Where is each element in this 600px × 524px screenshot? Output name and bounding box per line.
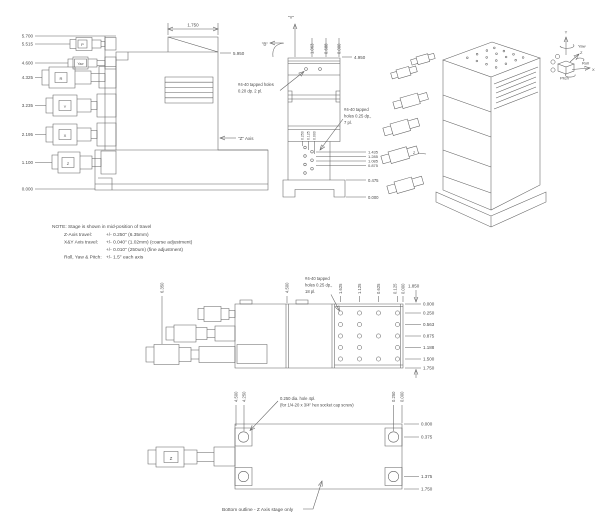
- note-block: NOTE: Stage is shown in mid-position of …: [52, 224, 193, 261]
- axis-indicator: Y Yaw Z Roll X Pitch: [551, 30, 595, 81]
- dim-label: 2.195: [22, 132, 34, 137]
- dim-label: 1.100: [22, 160, 34, 165]
- dim-label: 0.000: [313, 131, 317, 140]
- bottom-corner-bosses: [235, 428, 402, 486]
- side-body-outline: [283, 58, 345, 197]
- dim-label: 0.000: [401, 283, 406, 294]
- bottom-hole-note-line2: (for 1/4-20 x 3/4" hex socket cap screw): [280, 403, 354, 408]
- view-b-label: "B": [262, 42, 269, 47]
- iso-micrometers: [380, 52, 435, 196]
- dim-label: 4.600: [22, 61, 34, 66]
- dim-label: 1.500: [423, 357, 435, 362]
- z-axis-label: "Z" Axis: [238, 136, 254, 141]
- bottom-right-dim-extensions: [394, 405, 403, 431]
- dim-label: 0.875: [423, 334, 435, 339]
- plan-micrometers: [146, 307, 235, 365]
- micrometer-label-x: X: [64, 133, 67, 138]
- axis-yaw-arc: [560, 45, 574, 49]
- axis-stage-knobs: [551, 54, 560, 72]
- dim-label: 0.563: [423, 322, 435, 327]
- dim-label: 1.750: [423, 366, 435, 371]
- dim-label: 0.125: [393, 283, 398, 294]
- tapped-note-top-line2: 0.20 dp. 2 pl.: [238, 89, 262, 94]
- plan-tapped-note-line1: #4-40 tapped: [305, 276, 330, 281]
- tapped-note-front-line3: 7 pl.: [344, 120, 352, 125]
- tapped-note-top-line1: #4-40 tapped holes: [238, 82, 274, 87]
- plan-left-dim-extensions: [162, 296, 287, 344]
- tapped-note-front-leader: [320, 119, 343, 150]
- tapped-note-top-leader: [280, 72, 304, 91]
- bottom-hole-note-line1: 0.250 dia. hole 4pl.: [280, 396, 315, 401]
- bottom-z-micrometer-label: Z: [170, 456, 173, 461]
- plan-hole-grid: [338, 311, 399, 361]
- dim-label: 4.250: [242, 391, 247, 402]
- side-body-details: [288, 61, 340, 180]
- axis-z-label: Z: [580, 50, 583, 55]
- axis-yaw-label: Yaw: [578, 44, 586, 49]
- note-xy-travel-value: +/- 0.040" (1.02mm) (coarse adjustment): [106, 240, 193, 246]
- front-body-details: [95, 36, 268, 190]
- micrometer-label-y: Y: [64, 104, 67, 109]
- side-elevation-view: "Y" "B" 1.063 0.688 0.000 4.950 #4-40 ta…: [238, 15, 379, 200]
- front-micrometers: [42, 38, 105, 174]
- dim-label: 1.125: [357, 283, 362, 294]
- front-mount-brackets: [97, 38, 116, 175]
- dim-label: 1.375: [421, 474, 433, 479]
- bottom-screw-holes: [238, 432, 398, 482]
- dim-label: 5.700: [22, 34, 34, 39]
- dim-label: 1.750: [187, 23, 199, 28]
- dim-label: 1.188: [423, 345, 435, 350]
- dim-label: 0.000: [400, 391, 405, 402]
- dim-label: 5.950: [233, 51, 245, 56]
- note-xy-travel-label: X&Y Axis travel:: [64, 240, 98, 246]
- bottom-left-dim-extensions: [236, 405, 244, 431]
- y-axis-label: "Y": [288, 15, 295, 20]
- dim-label: 4.500: [285, 282, 290, 293]
- dim-label: 1.625: [338, 283, 343, 294]
- dim-label: 3.235: [22, 103, 34, 108]
- dim-label: 0.375: [421, 435, 433, 440]
- dim-label: 0.000: [368, 195, 379, 200]
- axis-roll-label: Roll: [582, 61, 589, 66]
- dim-label: 0.000: [423, 302, 435, 307]
- note-z-travel-label: Z-Axis travel:: [64, 232, 92, 238]
- dim-label: 0.688: [324, 43, 329, 54]
- bottom-caption-leader: [303, 481, 322, 509]
- side-hole-col-extensions: [303, 141, 315, 154]
- note-line1: NOTE: Stage is shown in mid-position of …: [52, 224, 151, 230]
- plan-row-dim-leaders: [405, 304, 421, 368]
- axis-x-label: X: [592, 67, 595, 72]
- bottom-row-dim-leaders: [404, 424, 419, 489]
- plan-body-outline: [235, 304, 403, 368]
- axis-z-arrow: [570, 54, 579, 62]
- dim-label: 0.475: [368, 178, 379, 183]
- dim-label: 0.250: [423, 311, 435, 316]
- dim-label: 0.000: [337, 43, 342, 54]
- y-axis-leader-hook: [273, 43, 284, 57]
- micrometer-label-z: Z: [67, 161, 70, 166]
- bottom-view: Z 4.500 4.250 0.250 dia. hole 4pl. (for …: [148, 391, 433, 513]
- bottom-z-micrometer: [148, 447, 235, 467]
- dim-label: 1.850: [408, 284, 420, 289]
- dim-label: 4.950: [354, 55, 366, 60]
- note-xy-travel-value2: +/- 0.010" (250um) (fine adjustment): [106, 247, 183, 253]
- dim-label: 0.250: [391, 391, 396, 402]
- bottom-plate-outline: [235, 424, 402, 489]
- multi-axis-stage-drawing: P Yaw R Y X Z 5.700 5.515 4.600 4.325 3.…: [0, 0, 600, 524]
- axis-stage-glyph: [558, 61, 574, 74]
- dim-label: 4.325: [22, 75, 34, 80]
- dim-label: 0.875: [368, 163, 379, 168]
- bottom-caption: Bottom outline - Z Axis stage only: [222, 507, 294, 513]
- side-right-dim-leaders: [316, 152, 366, 197]
- micrometer-label-yaw: Yaw: [78, 62, 85, 66]
- dim-label: 0.250: [301, 131, 305, 140]
- plan-tapped-note-line2: holes 0.25 dp.,: [305, 283, 332, 288]
- note-rot-travel-label: Roll, Yaw & Pitch:: [64, 255, 102, 261]
- iso-top-hole-grid: [466, 47, 524, 68]
- tapped-note-front-line2: holes 0.25 dp.,: [344, 114, 371, 119]
- dim-label: 0.125: [307, 131, 311, 140]
- dim-label: 1.750: [421, 487, 433, 492]
- iso-z-leader: [418, 153, 426, 154]
- iso-body-faces: [443, 42, 540, 210]
- iso-front-details: [443, 95, 491, 193]
- dim-label: 6.350: [160, 282, 165, 293]
- plan-tapped-note-line3: 18 pl.: [305, 289, 315, 294]
- axis-x-arrow: [572, 68, 590, 70]
- plan-col-dim-extensions: [341, 296, 404, 302]
- axis-y-label: Y: [565, 30, 568, 35]
- side-tapped-holes: [304, 68, 322, 175]
- note-rot-travel-value: +/- 1.5° each axis: [106, 255, 144, 261]
- dim-label: 1.063: [310, 43, 315, 54]
- front-elevation-view: P Yaw R Y X Z 5.700 5.515 4.600 4.325 3.…: [22, 23, 268, 192]
- dim-label: 0.000: [22, 187, 34, 192]
- dim-label: 4.500: [234, 391, 239, 402]
- tapped-note-front-line1: #4-40 tapped: [344, 107, 369, 112]
- micrometer-label-pitch: P: [81, 42, 84, 47]
- note-z-travel-value: +/- 0.250" (6.35mm): [106, 232, 149, 238]
- micrometer-label-roll: R: [60, 76, 63, 81]
- plan-view: 6.350 4.500 #4-40 tapped holes 0.25 dp.,…: [146, 276, 435, 378]
- technical-drawing-page: P Yaw R Y X Z 5.700 5.515 4.600 4.325 3.…: [0, 0, 600, 524]
- dim-label: 0.625: [376, 283, 381, 294]
- axis-pitch-label: Pitch: [560, 76, 569, 81]
- isometric-view: Z: [380, 42, 546, 227]
- dim-label: 5.515: [22, 42, 34, 47]
- bottom-hole-note-leader: [250, 401, 278, 431]
- dim-label: 0.000: [421, 422, 433, 427]
